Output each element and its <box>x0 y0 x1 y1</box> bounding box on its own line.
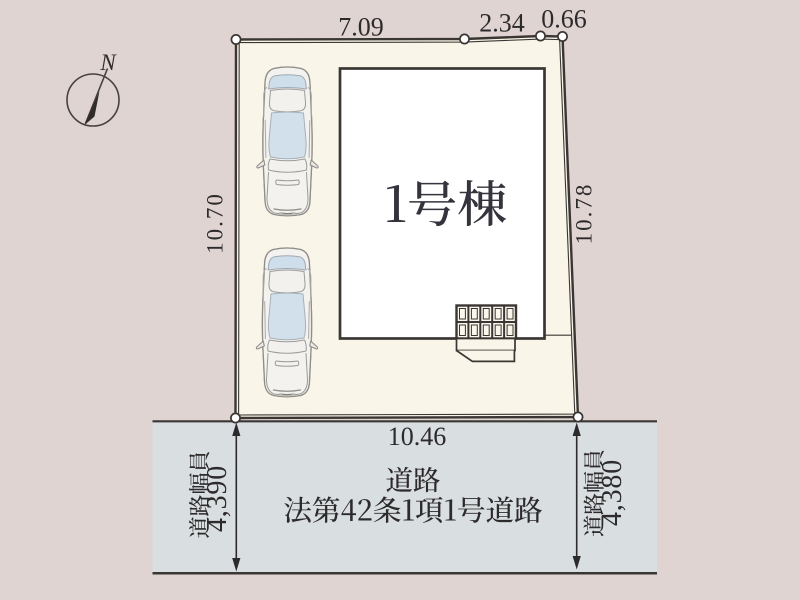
svg-text:N: N <box>99 50 117 75</box>
svg-text:10.70: 10.70 <box>203 192 228 254</box>
svg-text:7.09: 7.09 <box>338 13 384 42</box>
svg-text:4,390: 4,390 <box>202 465 233 532</box>
svg-text:2.34: 2.34 <box>479 9 525 38</box>
svg-text:4,380: 4,380 <box>597 459 628 526</box>
svg-text:0.66: 0.66 <box>541 5 587 34</box>
svg-text:10.46: 10.46 <box>388 422 447 451</box>
svg-text:10.78: 10.78 <box>572 183 597 245</box>
